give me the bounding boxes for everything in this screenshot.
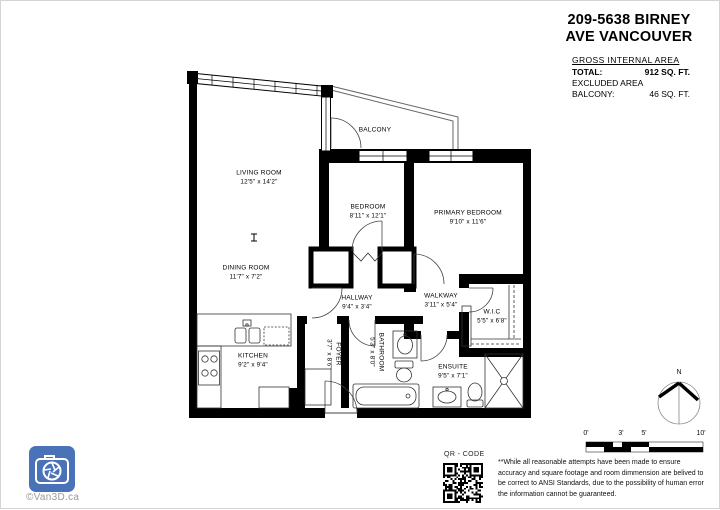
scale-label-0: 0' [583, 430, 588, 437]
room-label-foyer: FOYER 3'7" x 8'6" [324, 339, 341, 369]
bedroom-closets [311, 249, 414, 286]
room-label-hallway: HALLWAY 9'4" x 3'4" [341, 294, 372, 311]
room-label-bathroom: BATHROOM 5'3" x 8'0" [367, 333, 384, 372]
disclaimer-text: **While all reasonable attempts have bee… [498, 458, 710, 500]
area-summary: GROSS INTERNAL AREA TOTAL: 912 SQ. FT. E… [572, 55, 690, 100]
title-line-1: 209-5638 BIRNEY [551, 12, 707, 29]
total-value: 912 SQ. FT. [645, 67, 690, 77]
balcony-value: 46 SQ. FT. [649, 89, 690, 99]
excluded-heading: EXCLUDED AREA [572, 78, 643, 88]
van3d-logo [29, 446, 75, 492]
room-label-walkway: WALKWAY 3'11" x 5'4" [424, 292, 458, 309]
floorplan-page: LIVING ROOM 12'5" x 14'2" DINING ROOM 11… [0, 0, 720, 509]
total-label: TOTAL: [572, 67, 602, 77]
room-label-bedroom: BEDROOM 8'11" x 12'1" [350, 203, 387, 220]
title-line-2: AVE VANCOUVER [551, 29, 707, 46]
balcony-label: BALCONY: [572, 89, 615, 99]
diagonal-window-wall [187, 71, 333, 98]
room-label-dining: DINING ROOM 11'7" x 7'2" [223, 264, 270, 281]
room-label-living: LIVING ROOM 12'5" x 14'2" [236, 169, 282, 186]
scale-label-5: 5' [641, 430, 646, 437]
qr-code-label: QR - CODE [444, 451, 485, 458]
scale-bar [581, 439, 711, 457]
room-label-kitchen: KITCHEN 9'2" x 9'4" [238, 352, 268, 369]
room-label-wic: W.I.C 5'5" x 6'8" [477, 308, 507, 325]
north-arrow-icon [653, 377, 705, 429]
room-label-balcony: BALCONY [359, 127, 391, 136]
watermark: ©Van3D.ca [26, 492, 79, 503]
scale-label-3: 3' [618, 430, 623, 437]
north-label: N [676, 369, 681, 376]
qr-code [443, 463, 483, 503]
room-label-ensuite: ENSUITE 9'5" x 7'1" [438, 363, 468, 380]
balcony-railing [331, 86, 458, 151]
gross-area-heading: GROSS INTERNAL AREA [572, 55, 690, 65]
room-label-primary-bedroom: PRIMARY BEDROOM 9'10" x 11'6" [434, 209, 502, 226]
scale-label-10: 10' [696, 430, 705, 437]
page-title: 209-5638 BIRNEY AVE VANCOUVER [551, 12, 707, 47]
